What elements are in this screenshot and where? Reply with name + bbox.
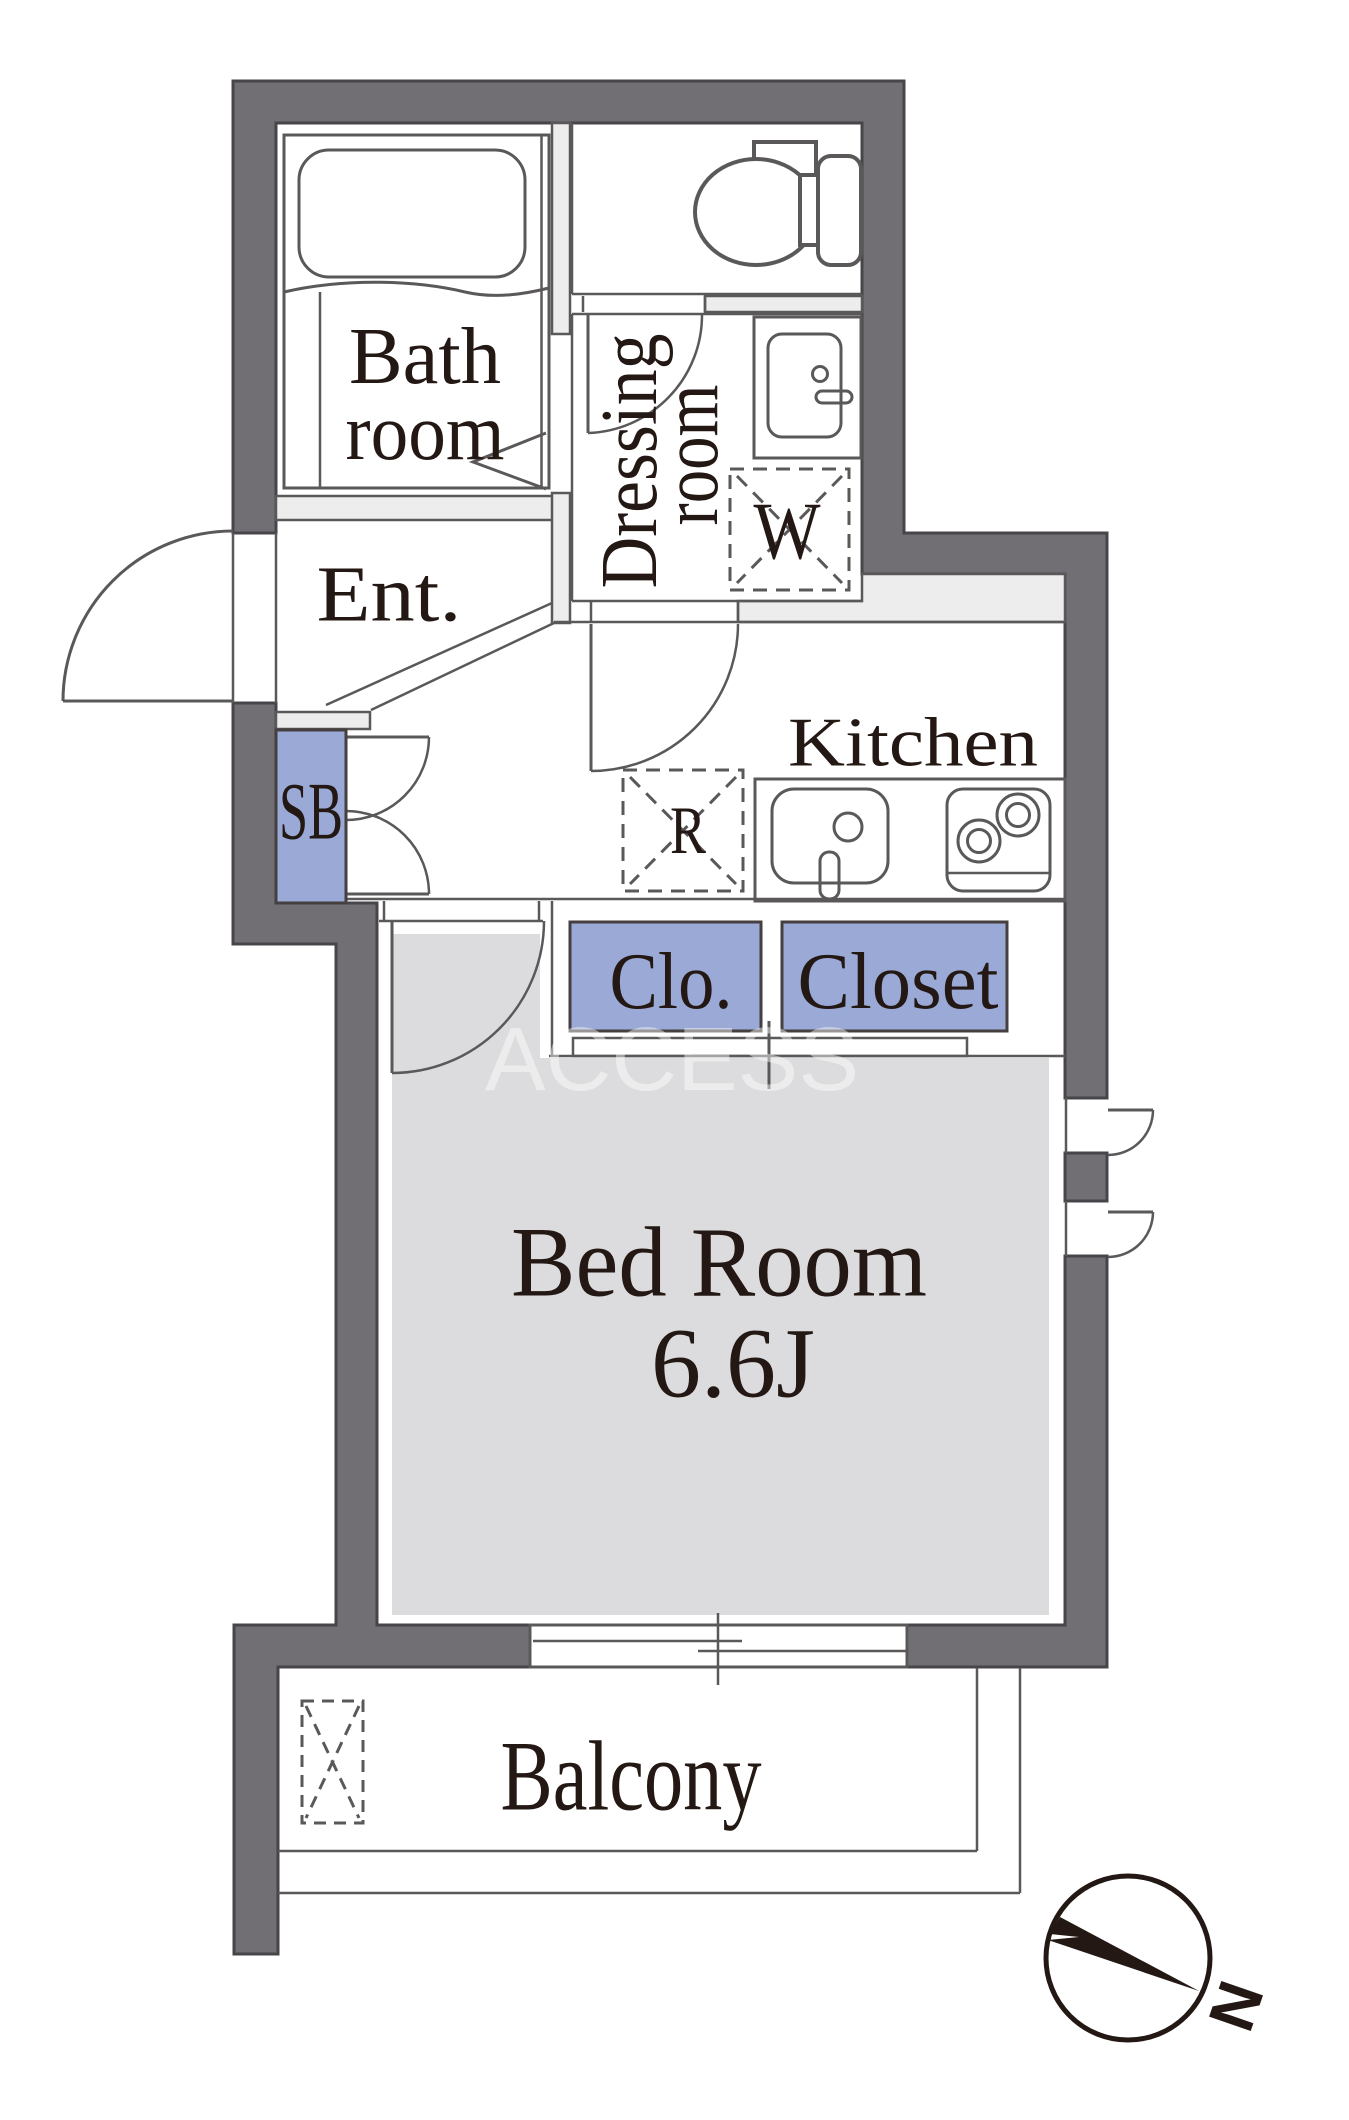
svg-text:6.6J: 6.6J [651, 1308, 815, 1419]
svg-text:Balcony: Balcony [501, 1721, 762, 1832]
svg-text:Bed Room: Bed Room [511, 1207, 927, 1318]
svg-text:Kitchen: Kitchen [788, 705, 1038, 782]
svg-text:ACCESS: ACCESS [485, 1010, 859, 1110]
svg-text:room: room [346, 389, 505, 477]
svg-text:Ent.: Ent. [317, 552, 462, 639]
svg-text:R: R [670, 792, 707, 868]
svg-text:Bath: Bath [349, 313, 501, 401]
svg-text:W: W [754, 486, 822, 577]
svg-text:room: room [647, 385, 735, 526]
svg-text:SB: SB [279, 766, 343, 857]
